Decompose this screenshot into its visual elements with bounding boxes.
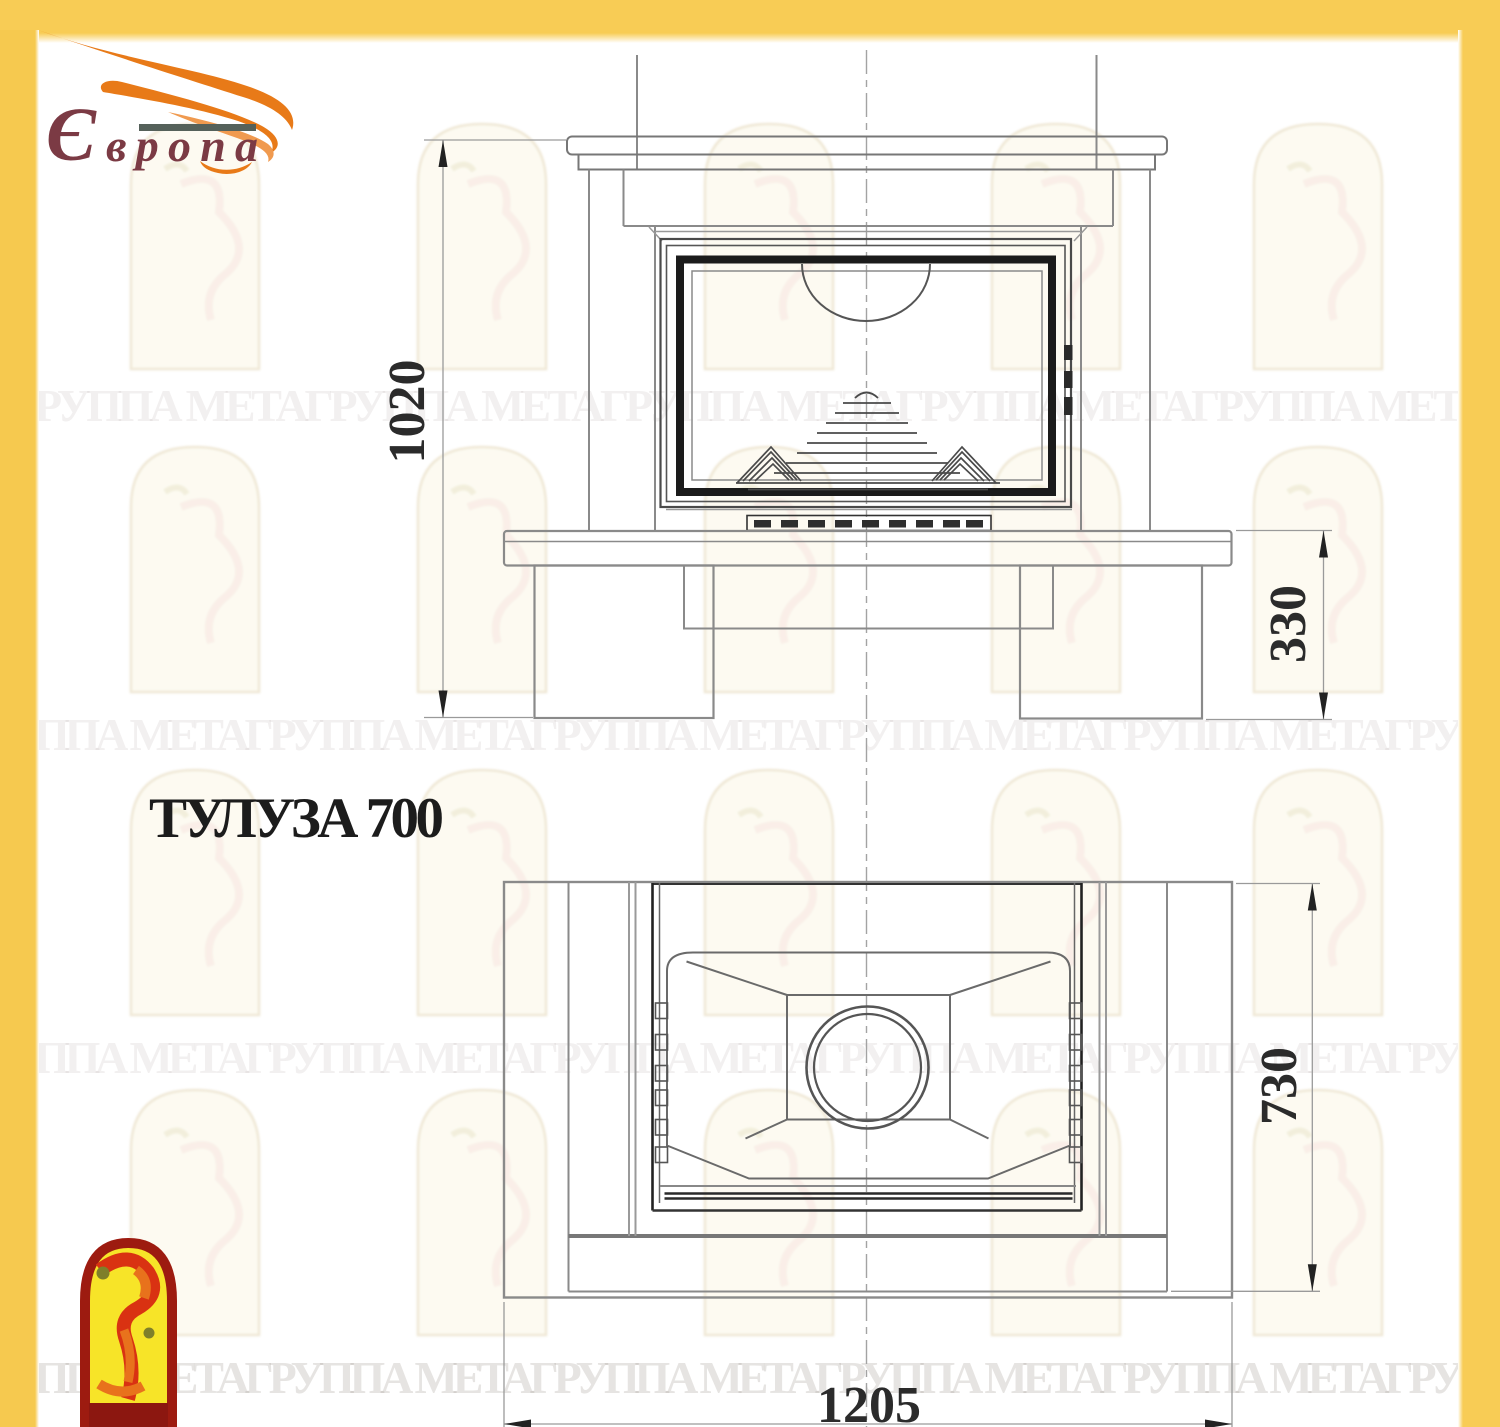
svg-text:ППА МЕТАГРУППА МЕТАГРУППА МЕТА: ППА МЕТАГРУППА МЕТАГРУППА МЕТАГРУППА МЕТ… [34,1352,1464,1403]
svg-text:Є: Є [46,93,97,177]
svg-text:1020: 1020 [379,360,436,464]
svg-text:ППА МЕТАГРУППА МЕТАГРУППА МЕТА: ППА МЕТАГРУППА МЕТАГРУППА МЕТАГРУППА МЕТ… [34,709,1464,760]
svg-text:1205: 1205 [817,1377,921,1427]
svg-text:РУППА МЕТАГРУППА МЕТАГРУППА МЕ: РУППА МЕТАГРУППА МЕТАГРУППА МЕТАГРУППА М… [34,380,1464,431]
svg-text:ППА МЕТАГРУППА МЕТАГРУППА МЕТА: ППА МЕТАГРУППА МЕТАГРУППА МЕТАГРУППА МЕТ… [34,1032,1464,1083]
svg-text:730: 730 [1251,1047,1308,1125]
svg-text:ТУЛУЗА 700: ТУЛУЗА 700 [149,787,444,850]
svg-text:330: 330 [1260,585,1317,663]
